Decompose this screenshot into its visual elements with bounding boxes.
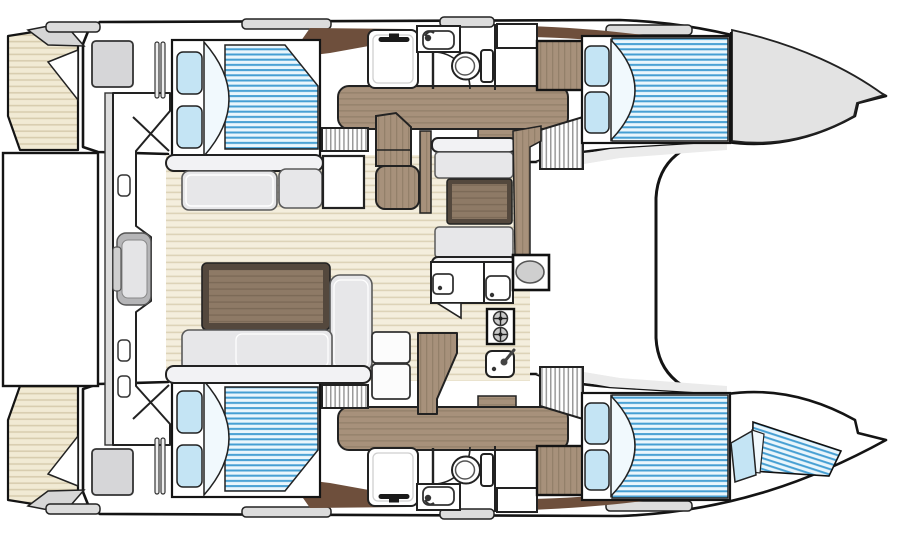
counter-sink [486, 276, 510, 300]
swim-platform [3, 153, 98, 386]
grab-handle [118, 175, 130, 196]
aft-bench-cushions [182, 169, 322, 210]
pillow [585, 403, 609, 444]
bed-starboard-aft [172, 379, 320, 497]
deck-bar [242, 507, 331, 517]
basin-console [513, 255, 549, 290]
dinette [432, 126, 541, 271]
wood-sole [338, 407, 568, 450]
slatted-door [155, 438, 159, 494]
washbasin [417, 26, 460, 52]
deck-bar [46, 504, 100, 514]
pillow [177, 52, 202, 94]
steps-port-aft [322, 128, 368, 151]
pillow [585, 450, 609, 490]
wardrobe-locker [92, 449, 133, 495]
pillow [177, 391, 202, 433]
fridge-unit [372, 364, 410, 399]
steps-starboard-aft [322, 385, 368, 408]
side-table [323, 156, 364, 208]
shower-valve-icon [389, 496, 399, 503]
bed-port-forward [582, 36, 730, 143]
stove [487, 309, 514, 344]
wood-sole [338, 86, 568, 129]
chaise [330, 275, 372, 372]
deck-bar [46, 22, 100, 32]
wood-wardrobe [537, 41, 583, 90]
toilet [452, 50, 493, 82]
wood-partition [420, 131, 431, 213]
drain-icon [492, 367, 496, 371]
deck-bar [242, 19, 331, 29]
pillow [585, 92, 609, 133]
shower [368, 30, 418, 88]
bed-starboard-forward [582, 393, 730, 500]
toilet [452, 454, 493, 486]
cabinet [497, 488, 537, 512]
drain-icon [490, 293, 494, 297]
shower [368, 448, 418, 506]
bench-cushion [435, 152, 513, 178]
oval-basin [516, 261, 544, 283]
floorplan-canvas [0, 0, 900, 536]
galley-sink [486, 350, 514, 377]
bench-cushion [435, 227, 513, 258]
wood-wardrobe [537, 446, 583, 495]
coachroof-front-wall [656, 126, 728, 410]
transom-steps-port [8, 23, 84, 150]
port-bow-locker [732, 30, 884, 143]
slatted-door [161, 42, 165, 98]
shower-valve-icon [389, 34, 399, 41]
chart-seat [376, 166, 419, 209]
counter-sink [433, 274, 453, 294]
transom-steps-starboard [8, 386, 84, 513]
slatted-door [161, 438, 165, 494]
coffee-table [202, 263, 330, 330]
washbasin [417, 484, 460, 510]
dinette-table [447, 179, 512, 224]
drain-icon [438, 286, 442, 290]
sofa-base [166, 366, 371, 383]
wardrobe-locker [92, 41, 133, 87]
pillow [585, 46, 609, 86]
transom-rail [105, 93, 113, 445]
pillow [177, 445, 202, 487]
slatted-door [155, 42, 159, 98]
catamaran-floorplan [0, 0, 900, 536]
sofa-seat [182, 330, 332, 371]
bed-port-aft [172, 40, 320, 158]
pillow [177, 106, 202, 148]
burner-icon [494, 328, 508, 342]
bench-back [432, 138, 516, 152]
cabinet [497, 24, 537, 48]
grab-handle [118, 340, 130, 361]
helm-seat [113, 233, 151, 305]
fridge-unit [372, 332, 410, 363]
burner-icon [494, 312, 508, 326]
grab-handle [118, 376, 130, 397]
